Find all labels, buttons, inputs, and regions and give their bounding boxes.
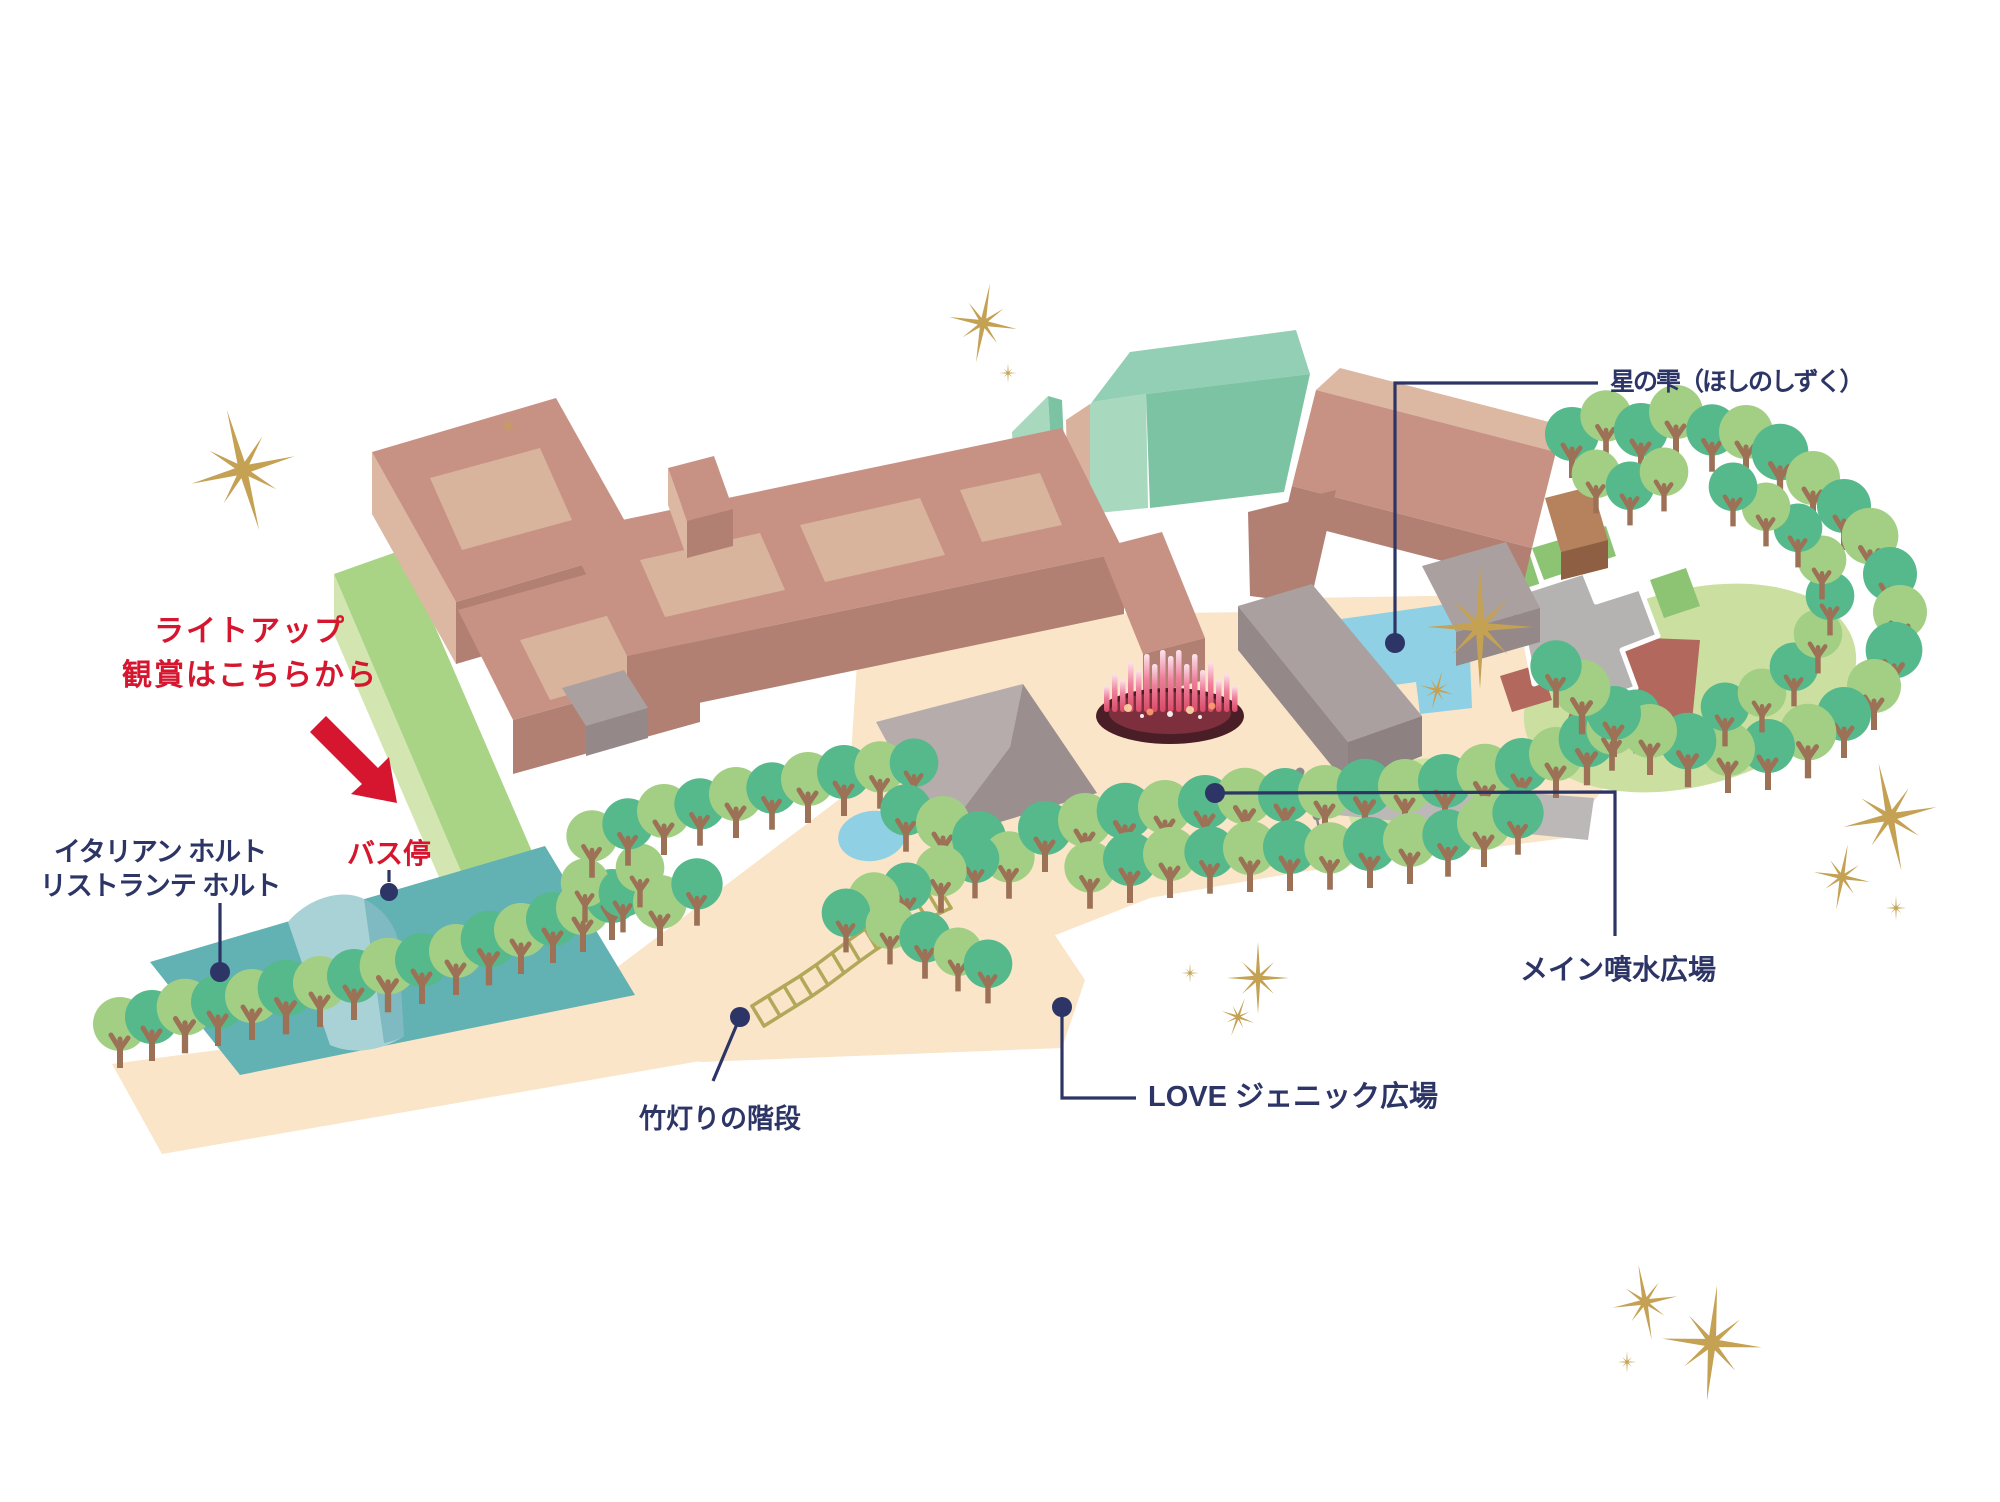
label-lightup-line1: ライトアップ [100,610,400,654]
label-hoshi-no-shizuku: 星の雫（ほしのしずく） [1610,367,1863,397]
label-bus-stop: バス停 [318,837,460,871]
fountain-marker [1205,783,1225,803]
label-bamboo-stairs: 竹灯りの階段 [630,1103,810,1135]
label-lightup-line2: 観賞はこちらから [100,654,400,698]
love-marker [1052,997,1072,1017]
label-main-fountain-plaza: メイン噴水広場 [1520,953,1716,987]
label-lightup-notice: ライトアップ 観賞はこちらから [100,610,400,697]
label-italian-line2: リストランテ ホルト [30,870,290,904]
italian-marker [210,962,230,982]
bus-stop-marker [380,883,398,901]
label-italian-holt: イタリアン ホルト リストランテ ホルト [30,836,290,904]
label-love-plaza: LOVE ジェニック広場 [1148,1080,1438,1115]
bamboo-marker [730,1007,750,1027]
love-callout-line [1062,1007,1136,1098]
park-illumination-map: 星の雫（ほしのしずく） ライトアップ 観賞はこちらから イタリアン ホルト リス… [0,0,2000,1502]
park-map-illustration [0,0,2000,1502]
hoshi-marker [1385,633,1405,653]
label-italian-line1: イタリアン ホルト [30,836,290,870]
